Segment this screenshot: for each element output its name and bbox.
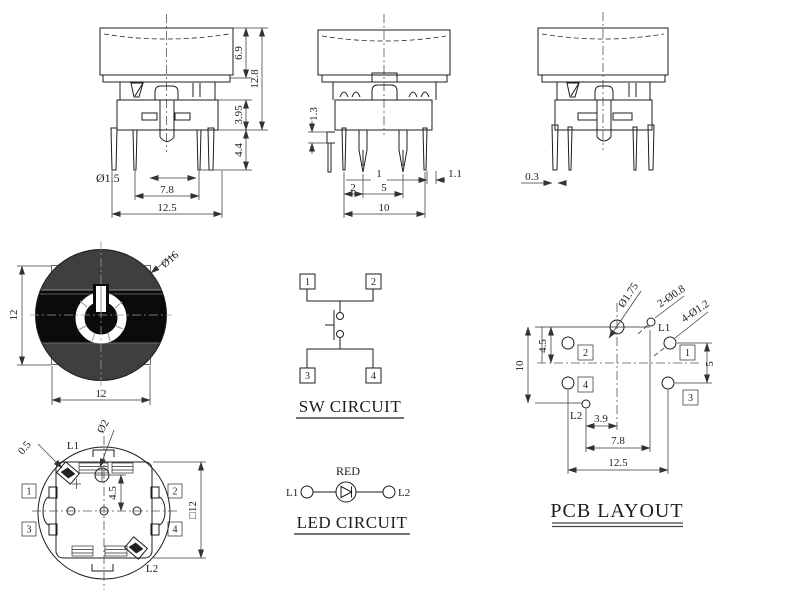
pcb-pin-3-label: 3 bbox=[688, 393, 693, 404]
dim-led-pin-span: 5 bbox=[381, 182, 387, 194]
side-view-rear-linework bbox=[538, 12, 668, 170]
technical-drawing-canvas: 6.9 12.8 3.95 4.4 Ø1.5 7.8 12.5 bbox=[0, 0, 800, 600]
dim-height: 12 bbox=[8, 310, 20, 321]
dim-cap-dia: Ø16 bbox=[159, 249, 182, 271]
bottom-pin-3-label: 3 bbox=[27, 525, 32, 536]
sw-pin-4-label: 4 bbox=[371, 371, 376, 382]
dim-center-hole: Ø1.75 bbox=[616, 280, 641, 310]
dim-step: 1.3 bbox=[308, 107, 320, 121]
sw-circuit-title: SW CIRCUIT bbox=[299, 397, 402, 416]
led-terminal-l2 bbox=[125, 537, 148, 559]
dim-width: 12 bbox=[96, 388, 107, 400]
dim-led-span: 7.8 bbox=[611, 435, 625, 447]
dim-pin-width: 1 bbox=[376, 168, 382, 180]
pcb-pin-1-label: 1 bbox=[685, 348, 690, 359]
led-l1-label: L1 bbox=[286, 487, 298, 499]
pcb-layout-title: PCB LAYOUT bbox=[550, 500, 683, 522]
dim-pin-length: 4.4 bbox=[233, 143, 245, 157]
bottom-pin-2-label: 2 bbox=[173, 487, 178, 498]
side-view-front-dimensions: 6.9 12.8 3.95 4.4 Ø1.5 7.8 12.5 bbox=[96, 28, 268, 218]
dim-cap-height: 6.9 bbox=[233, 46, 245, 60]
sw-pin-1-label: 1 bbox=[305, 277, 310, 288]
dim-overall-height: 12.8 bbox=[249, 69, 261, 89]
bottom-l1-label: L1 bbox=[67, 440, 79, 452]
pcb-pin-hole-3 bbox=[662, 377, 674, 389]
pcb-layout-dimensions: Ø1.75 2-Ø0.8 4-Ø1.2 L1 L2 2 1 4 3 10 4.5… bbox=[514, 280, 716, 474]
pcb-pin-hole-4 bbox=[562, 377, 574, 389]
side-view-rear: 0.3 bbox=[521, 12, 668, 183]
led-circuit-title: LED CIRCUIT bbox=[297, 513, 408, 532]
side-view-rear-dimensions: 0.3 bbox=[521, 171, 563, 183]
pcb-pin-2-label: 2 bbox=[583, 348, 588, 359]
bottom-l2-label: L2 bbox=[146, 563, 158, 575]
dim-v-pins: 5 bbox=[704, 361, 716, 367]
bottom-view-dimensions: 4.5 □12 0.5 Ø2 L1 L2 1 3 2 4 bbox=[16, 418, 206, 575]
dim-l2-offset: 3.9 bbox=[594, 413, 608, 425]
dim-leg-thickness: 0.3 bbox=[525, 171, 539, 183]
led-terminal-l1 bbox=[57, 462, 80, 484]
dim-pin-holes: 4-Ø1.2 bbox=[679, 298, 711, 325]
dim-led-pin-offset: 2 bbox=[350, 182, 356, 194]
pcb-layout: Ø1.75 2-Ø0.8 4-Ø1.2 L1 L2 2 1 4 3 10 4.5… bbox=[514, 280, 716, 526]
dim-inner-pin-span: 7.8 bbox=[160, 184, 174, 196]
side-view-led-linework bbox=[318, 14, 450, 172]
bottom-pin-1-label: 1 bbox=[27, 487, 32, 498]
dim-pin-tip: 1.1 bbox=[448, 168, 462, 180]
sw-pin-3-label: 3 bbox=[305, 371, 310, 382]
pcb-pin-hole-2 bbox=[562, 337, 574, 349]
bottom-view: 4.5 □12 0.5 Ø2 L1 L2 1 3 2 4 bbox=[16, 418, 206, 590]
led-color-label: RED bbox=[336, 464, 360, 478]
pcb-led-hole-l1 bbox=[647, 318, 655, 326]
pcb-l2-label: L2 bbox=[570, 410, 582, 422]
dim-v-overall: 10 bbox=[514, 360, 526, 372]
side-view-led: 1.3 1 1.1 2 5 10 bbox=[308, 14, 462, 218]
dim-post-dia: Ø2 bbox=[95, 418, 112, 436]
sw-circuit: 1 2 3 4 SW CIRCUIT bbox=[296, 274, 404, 418]
sw-pin-2-label: 2 bbox=[371, 277, 376, 288]
pcb-l1-label: L1 bbox=[658, 322, 670, 334]
sw-circuit-wiring bbox=[307, 289, 373, 368]
dim-slot: 0.5 bbox=[16, 439, 34, 458]
led-l2-label: L2 bbox=[398, 487, 410, 499]
dim-body-height: 3.95 bbox=[233, 105, 245, 125]
drawing-sheet: 6.9 12.8 3.95 4.4 Ø1.5 7.8 12.5 bbox=[0, 0, 800, 600]
bottom-pin-4-label: 4 bbox=[173, 525, 178, 536]
dim-body-size: □12 bbox=[187, 501, 199, 519]
led-circuit: RED L1 L2 LED CIRCUIT bbox=[286, 464, 410, 534]
dim-pin-span: 10 bbox=[379, 202, 391, 214]
pcb-led-hole-l2 bbox=[582, 400, 590, 408]
side-view-front: 6.9 12.8 3.95 4.4 Ø1.5 7.8 12.5 bbox=[96, 14, 268, 218]
dim-h-overall: 12.5 bbox=[608, 457, 628, 469]
side-view-front-linework bbox=[100, 14, 233, 170]
pcb-pin-4-label: 4 bbox=[583, 380, 588, 391]
dim-outer-pin-span: 12.5 bbox=[157, 202, 177, 214]
front-view: 12 12 Ø16 bbox=[8, 241, 182, 405]
led-diode-symbol bbox=[336, 482, 356, 502]
dim-v-top: 4.5 bbox=[537, 339, 549, 353]
pcb-pin-hole-1 bbox=[664, 337, 676, 349]
dim-pin-dia: Ø1.5 bbox=[96, 171, 120, 185]
dim-center-offset: 4.5 bbox=[107, 486, 119, 500]
